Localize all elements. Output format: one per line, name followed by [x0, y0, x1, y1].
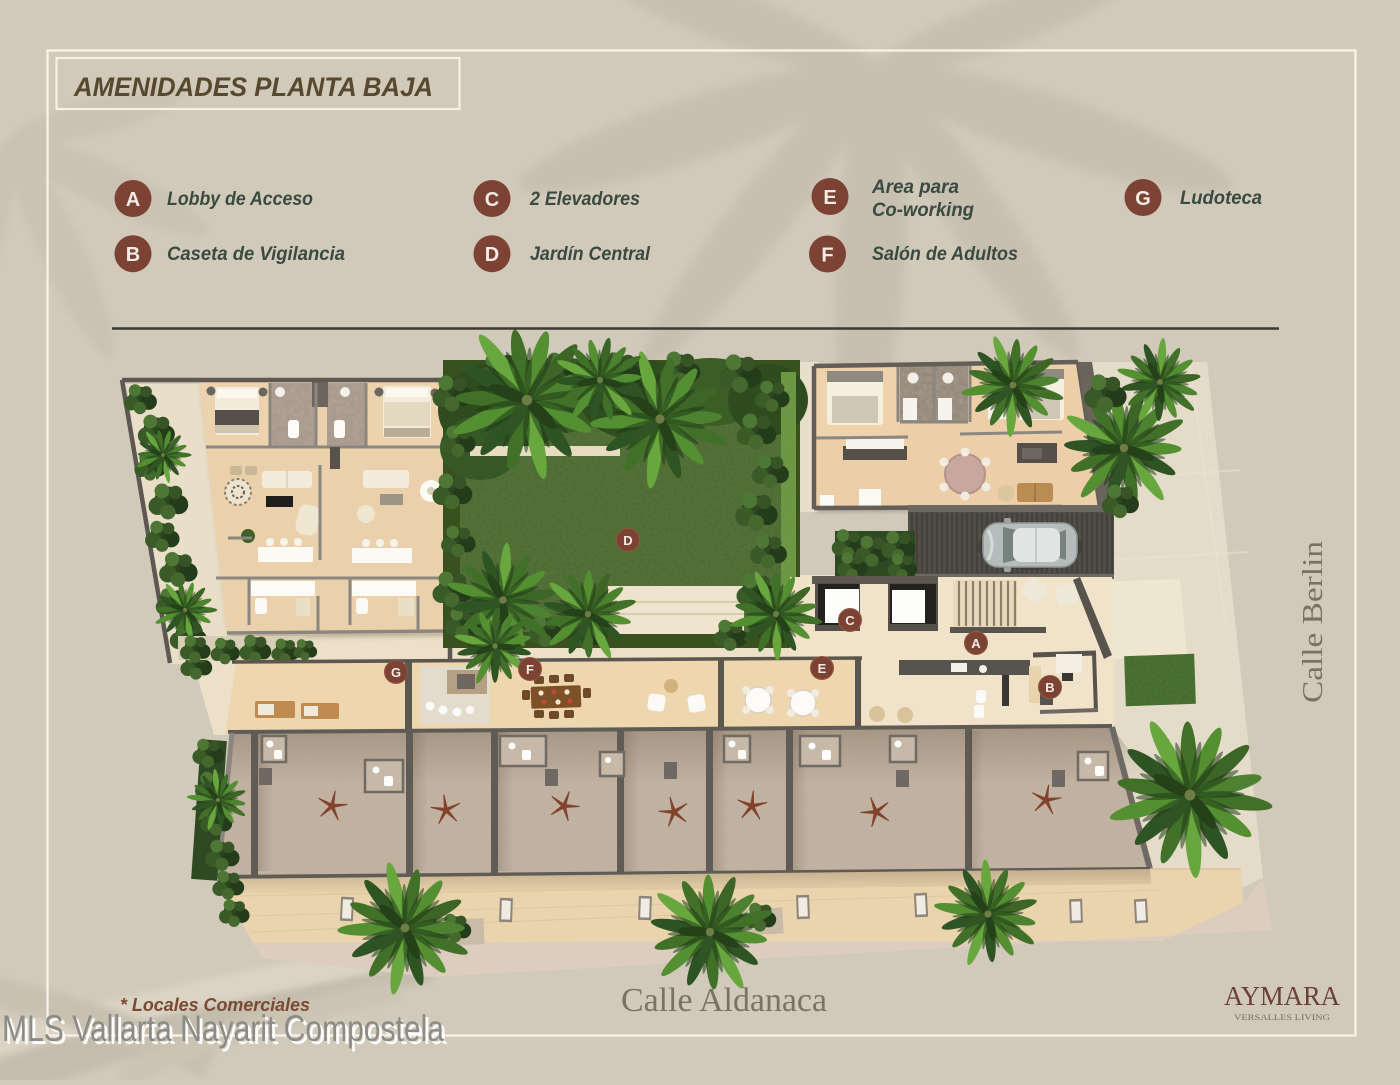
- svg-text:D: D: [623, 533, 632, 548]
- svg-text:MLS Vallarta Nayarit Compostel: MLS Vallarta Nayarit Compostela: [2, 1008, 444, 1049]
- svg-text:E: E: [823, 187, 836, 209]
- svg-text:G: G: [1135, 188, 1151, 210]
- svg-text:Calle Berlin: Calle Berlin: [1298, 541, 1329, 703]
- svg-text:Caseta de Vigilancia: Caseta de Vigilancia: [167, 244, 345, 265]
- svg-text:Co-working: Co-working: [872, 200, 974, 221]
- svg-text:E: E: [818, 661, 827, 676]
- svg-text:A: A: [971, 636, 981, 651]
- svg-text:Salón de Adultos: Salón de Adultos: [872, 244, 1018, 265]
- svg-text:Jardín Central: Jardín Central: [530, 244, 651, 265]
- svg-text:Area para: Area para: [871, 177, 959, 198]
- svg-text:AYMARA: AYMARA: [1224, 981, 1340, 1011]
- svg-text:F: F: [821, 245, 833, 267]
- svg-text:Ludoteca: Ludoteca: [1180, 188, 1262, 209]
- svg-text:C: C: [845, 613, 855, 628]
- svg-text:C: C: [485, 189, 499, 211]
- svg-text:A: A: [126, 189, 140, 211]
- svg-text:Calle Aldanaca: Calle Aldanaca: [621, 982, 827, 1019]
- svg-text:F: F: [526, 662, 534, 677]
- svg-text:G: G: [391, 665, 401, 680]
- svg-text:B: B: [126, 244, 140, 266]
- svg-text:2 Elevadores: 2 Elevadores: [529, 189, 640, 210]
- svg-text:VERSALLES LIVING: VERSALLES LIVING: [1234, 1013, 1330, 1022]
- svg-text:D: D: [485, 244, 499, 266]
- svg-text:Lobby de Acceso: Lobby de Acceso: [167, 189, 313, 210]
- svg-text:B: B: [1045, 680, 1054, 695]
- svg-text:AMENIDADES PLANTA BAJA: AMENIDADES PLANTA BAJA: [73, 72, 433, 102]
